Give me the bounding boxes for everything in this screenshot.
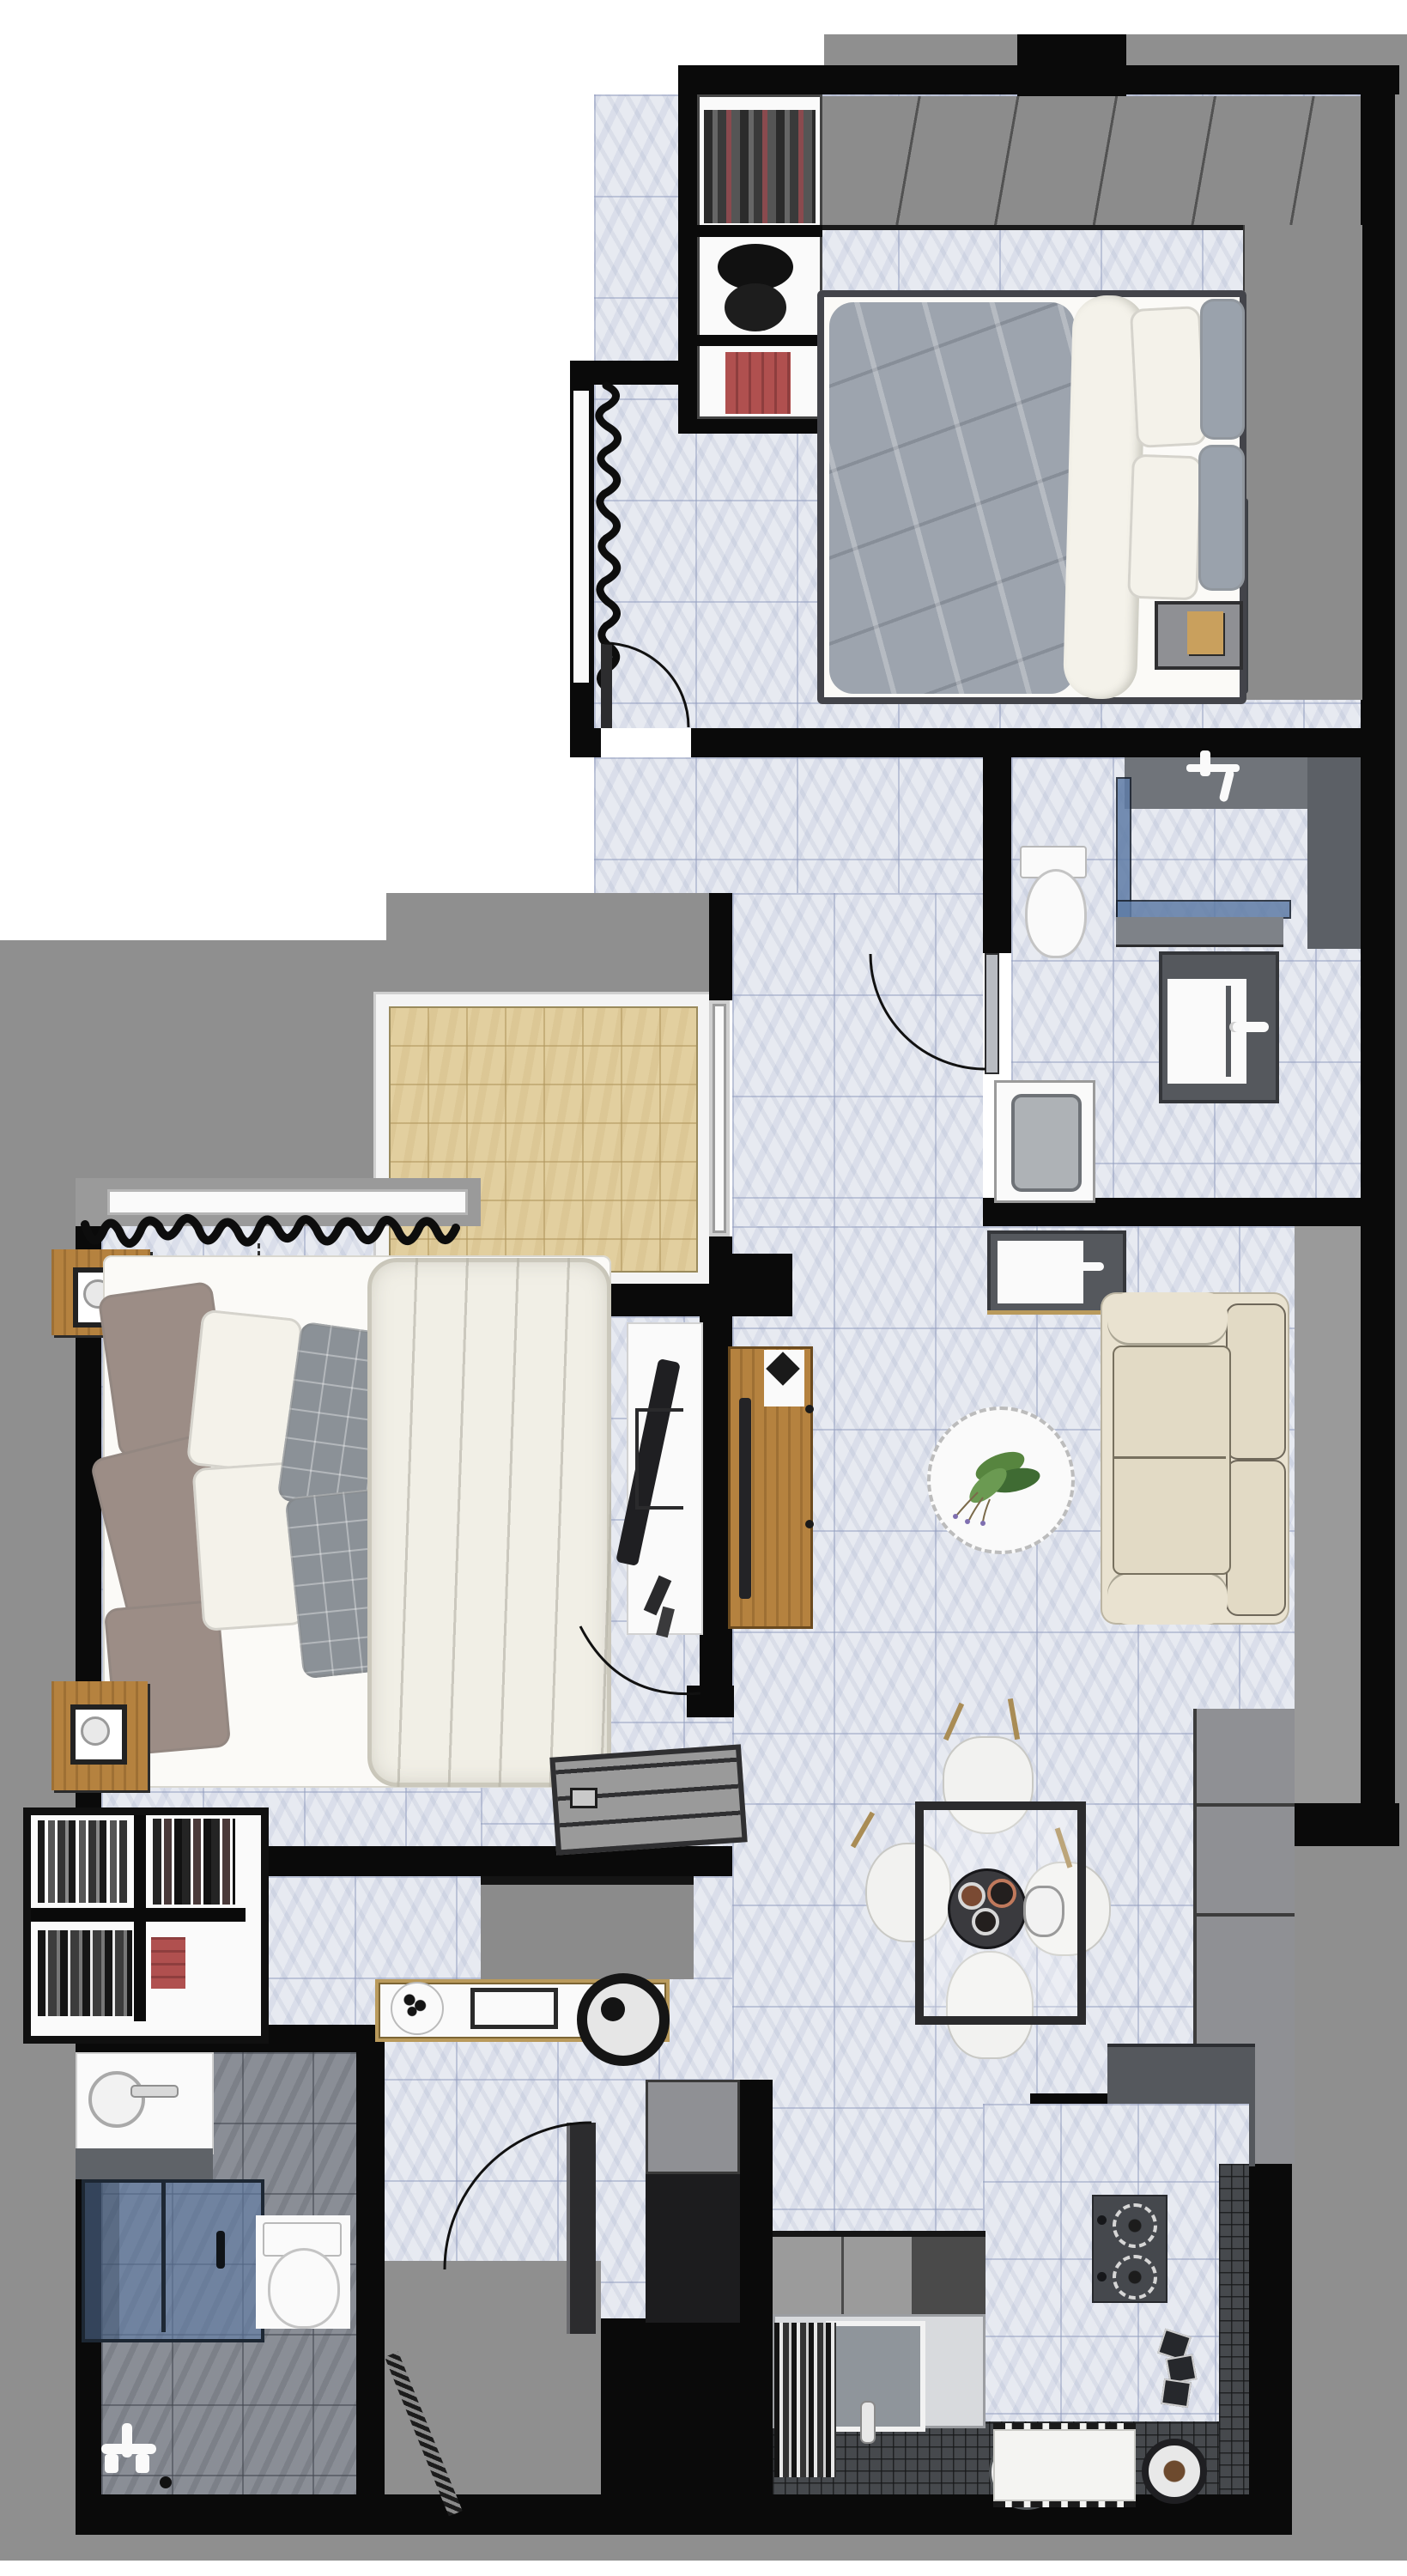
shower1-glass-horizontal <box>1116 900 1291 919</box>
stove-knob-1 <box>1097 2215 1107 2225</box>
washing-machine-door <box>1011 1094 1082 1192</box>
master-lamp-bottom <box>81 1716 110 1746</box>
floor-plan-canvas <box>0 0 1407 2576</box>
wash-basin <box>998 1241 1083 1303</box>
bookshelf-divider <box>134 1815 146 2021</box>
kitchen-upper-cabinets <box>773 2231 986 2320</box>
master-fluffy-duvet <box>367 1258 611 1787</box>
living-window-ledge <box>1295 1226 1361 1803</box>
bench-handle <box>570 1788 597 1808</box>
tv-panel-screen <box>739 1398 751 1599</box>
bath2-drain <box>160 2476 172 2488</box>
wall-dining-jog <box>1292 1803 1399 1846</box>
storage-jar <box>1142 2439 1207 2504</box>
wall-bedroom2-bottom-b <box>691 728 983 757</box>
toilet1-bowl <box>1025 869 1087 958</box>
dish-rack <box>774 2323 836 2477</box>
kitchen-fringe-mat <box>993 2423 1136 2507</box>
wash-basin-faucet <box>1075 1262 1104 1271</box>
bed2-white-pillow-2 <box>1127 454 1203 601</box>
bath2-floor-faucet-knob-2 <box>136 2454 149 2473</box>
wall-closet-bottom <box>678 419 822 434</box>
bath2-faucet <box>130 2085 179 2098</box>
stove-burner-2 <box>1113 2255 1157 2300</box>
wardrobe-top-run <box>822 96 1361 230</box>
master-door-arc <box>573 1621 704 1707</box>
counter-step-line-2 <box>1193 1913 1295 1917</box>
refrigerator-body <box>646 2174 740 2323</box>
bath2-floor-faucet-knob-1 <box>105 2454 118 2473</box>
wall-balcony-right-upper <box>709 893 732 1000</box>
tv-bracket <box>635 1408 683 1510</box>
shower1-faucet-head <box>1200 750 1210 776</box>
bookshelf-books-top-left <box>38 1820 127 1903</box>
wall-bathroom1-top <box>983 728 1361 757</box>
bookshelf-books-top-right <box>153 1819 235 1905</box>
corridor-floor-upper <box>594 757 983 893</box>
wall-right-upper <box>1361 65 1395 1846</box>
bath1-faucet <box>1233 1022 1269 1032</box>
console-decor-flowers <box>402 1992 428 2018</box>
balcony-sliding-glass-door <box>709 1000 730 1236</box>
wall-balcony-right-lower <box>709 1236 732 1286</box>
bed2-gray-duvet <box>829 302 1075 694</box>
stove-knob-2 <box>1097 2272 1107 2281</box>
tray-cup-1 <box>958 1882 986 1910</box>
entry-door-arc <box>436 2114 595 2273</box>
bath1-vanity-divider <box>1226 986 1231 1077</box>
sofa-armrest-top <box>1107 1292 1228 1346</box>
sofa-seat-divider <box>1114 1456 1226 1459</box>
shower1-wall-right <box>1307 757 1361 949</box>
toilet2-bowl <box>268 2248 340 2329</box>
stove-burner-1 <box>1113 2203 1157 2248</box>
bedroom2-window-glass <box>573 391 589 683</box>
hat-stack-small <box>725 283 786 331</box>
kitchen-sink <box>826 2321 925 2432</box>
refrigerator-top <box>646 2080 740 2174</box>
console-picture-frame <box>470 1988 558 2029</box>
tray-cup-2 <box>987 1879 1016 1908</box>
terrace-surround-left <box>76 940 386 1183</box>
bath2-shower-glass <box>82 2179 264 2342</box>
red-books <box>725 352 791 414</box>
closet-shelf-line-1 <box>697 225 822 237</box>
wall-bathroom2-right <box>356 2052 385 2494</box>
sofa-back-cushion-2 <box>1226 1460 1286 1616</box>
terrace-surround-top <box>386 893 732 1000</box>
bed2-headboard-run <box>1243 225 1362 700</box>
kitchen-faucet <box>860 2401 876 2444</box>
bath2-counter-ledge <box>76 2148 213 2179</box>
bathroom1-door-arc <box>869 949 989 1073</box>
nightstand-decor-box <box>1187 611 1223 654</box>
bath2-shower-glass-divider <box>161 2183 166 2332</box>
wheel-decor-hub <box>601 1997 625 2021</box>
exterior-right-margin-lower <box>1292 1846 1407 2561</box>
bed2-gray-pillow-1 <box>1200 299 1245 440</box>
wall-kitchen-left <box>740 2080 773 2535</box>
wall-bathroom1-left <box>983 757 1011 953</box>
exterior-bottom-band <box>0 2535 1292 2561</box>
kitchen-mosaic-wall-strip <box>1219 2164 1249 2494</box>
sofa-seat-cushions <box>1113 1346 1231 1575</box>
sofa-back-cushion-1 <box>1226 1303 1286 1460</box>
bath2-floor-faucet-stem <box>122 2423 132 2458</box>
coffee-table-plant <box>940 1436 1052 1530</box>
tray-cup-3 <box>972 1908 999 1935</box>
wall-master-bottom <box>253 1846 732 1876</box>
bookshelf-red-books <box>151 1937 185 1989</box>
bath2-shower-handle <box>216 2231 225 2269</box>
bookshelf-books-bottom-left <box>38 1930 132 2016</box>
bed2-white-pillow-1 <box>1130 306 1207 448</box>
wardrobe-block <box>481 1876 694 1979</box>
wall-bedroom2-bottom-a <box>570 728 601 757</box>
spice-box-3 <box>1161 2379 1192 2408</box>
bedroom2-door-arc <box>601 640 692 731</box>
wall-corridor-corner <box>732 1254 792 1286</box>
bath2-basin <box>88 2071 145 2128</box>
closet-shelf-line-2 <box>697 335 822 346</box>
bed2-gray-pillow-2 <box>1198 445 1245 591</box>
tv-panel-handle-2 <box>805 1520 814 1528</box>
hanging-clothes <box>704 110 816 223</box>
tv-panel-handle-1 <box>805 1405 814 1413</box>
shower1-bench <box>1116 917 1283 947</box>
wheel-decor <box>577 1973 670 2066</box>
sofa-armrest-bottom <box>1107 1571 1228 1625</box>
table-kettle <box>1023 1886 1064 1937</box>
counter-step-line-1 <box>1193 1803 1295 1807</box>
exterior-right-margin-upper <box>1395 34 1407 1846</box>
